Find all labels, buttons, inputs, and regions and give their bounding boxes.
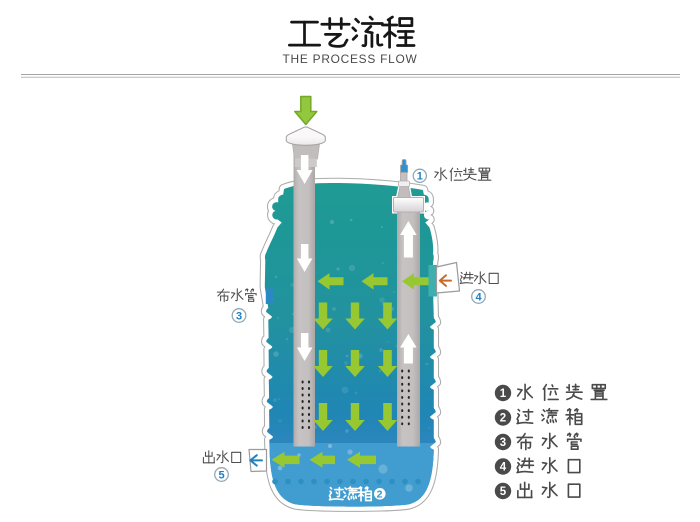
svg-text:3: 3 [236, 310, 242, 322]
svg-text:4: 4 [475, 291, 482, 303]
svg-text:1: 1 [417, 171, 423, 183]
svg-text:5: 5 [218, 469, 224, 481]
svg-text:3: 3 [500, 437, 506, 449]
svg-text:2: 2 [377, 489, 383, 501]
svg-text:5: 5 [500, 486, 507, 498]
svg-text:THE PROCESS FLOW: THE PROCESS FLOW [283, 52, 418, 66]
svg-text:1: 1 [500, 388, 507, 400]
svg-text:2: 2 [500, 413, 506, 425]
svg-text:4: 4 [500, 462, 507, 474]
